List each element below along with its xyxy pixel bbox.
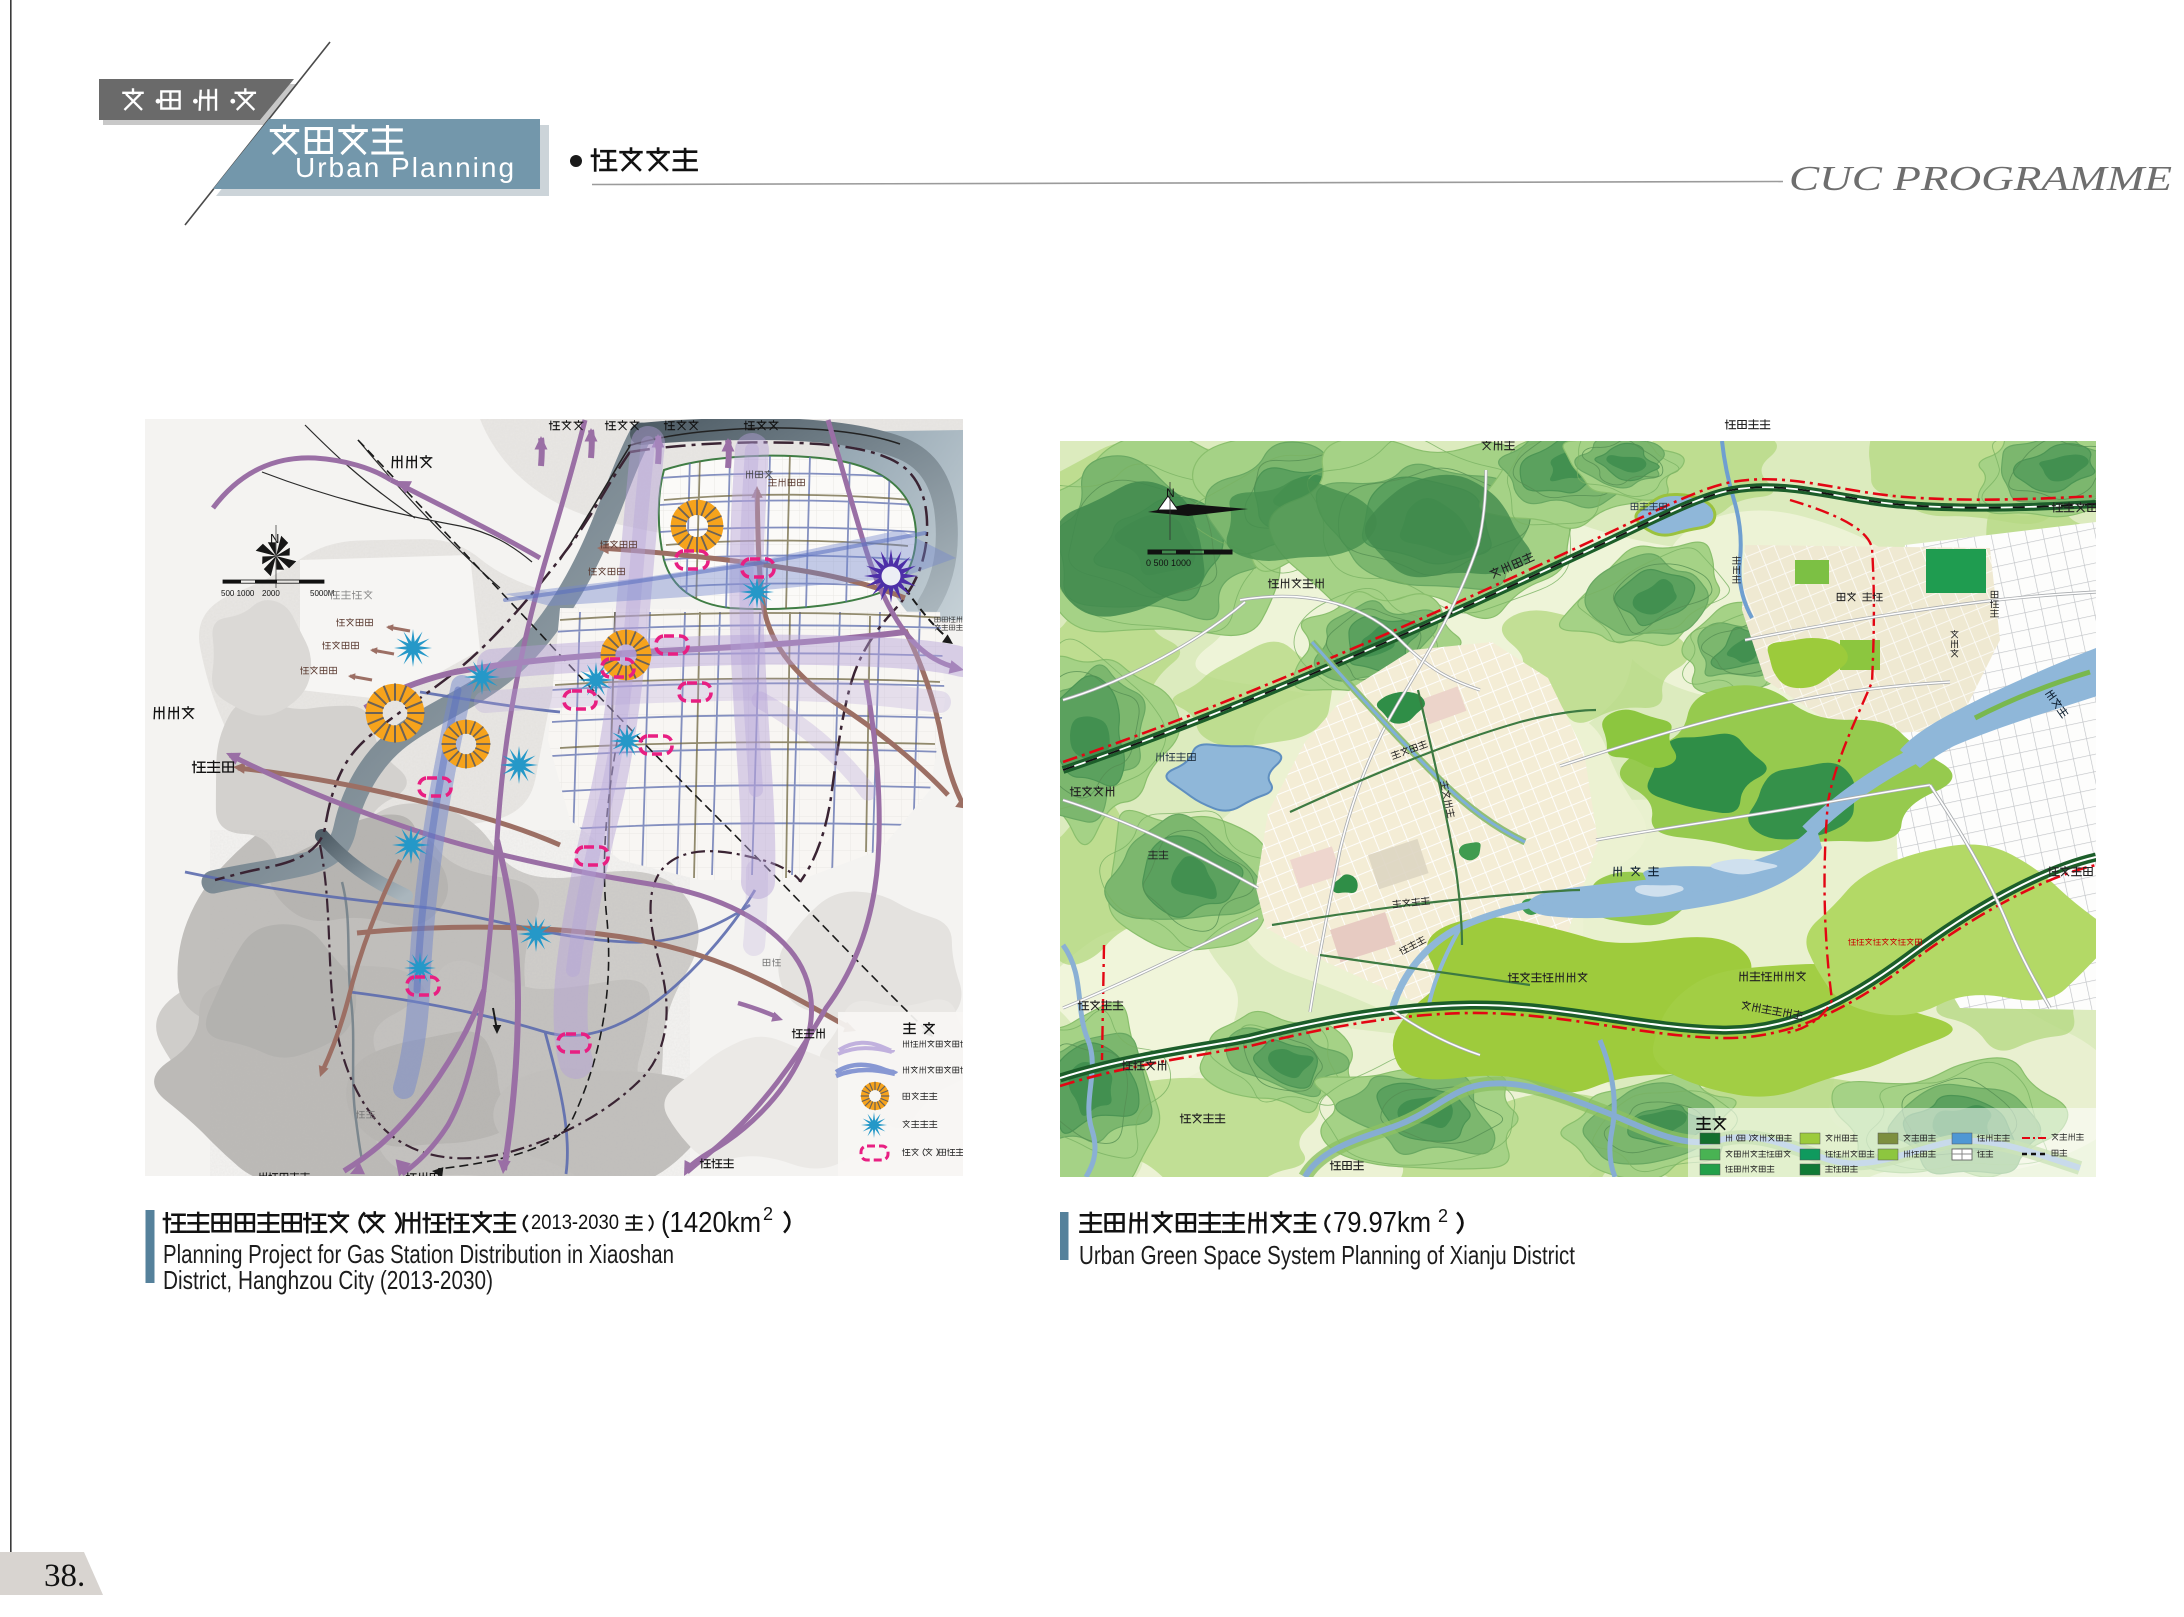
svg-text:2013-2030: 2013-2030 xyxy=(531,1211,619,1234)
svg-text:2000: 2000 xyxy=(262,589,280,598)
svg-text:2: 2 xyxy=(763,1204,773,1224)
svg-text:CUC PROGRAMME: CUC PROGRAMME xyxy=(1789,159,2172,198)
svg-text:N: N xyxy=(270,531,279,546)
svg-text:District, Hanghzou City (2013-: District, Hanghzou City (2013-2030) xyxy=(163,1265,493,1295)
svg-text:500 1000: 500 1000 xyxy=(221,589,255,598)
svg-text:Urban Planning: Urban Planning xyxy=(295,152,516,183)
svg-text:Urban Green Space System Plann: Urban Green Space System Planning of Xia… xyxy=(1079,1240,1576,1270)
svg-text:0 500 1000: 0 500 1000 xyxy=(1146,558,1191,568)
svg-text:79.97km: 79.97km xyxy=(1333,1207,1431,1239)
svg-text:(1420km: (1420km xyxy=(661,1207,761,1239)
svg-text:2: 2 xyxy=(1438,1206,1448,1226)
svg-text:38.: 38. xyxy=(44,1558,85,1594)
